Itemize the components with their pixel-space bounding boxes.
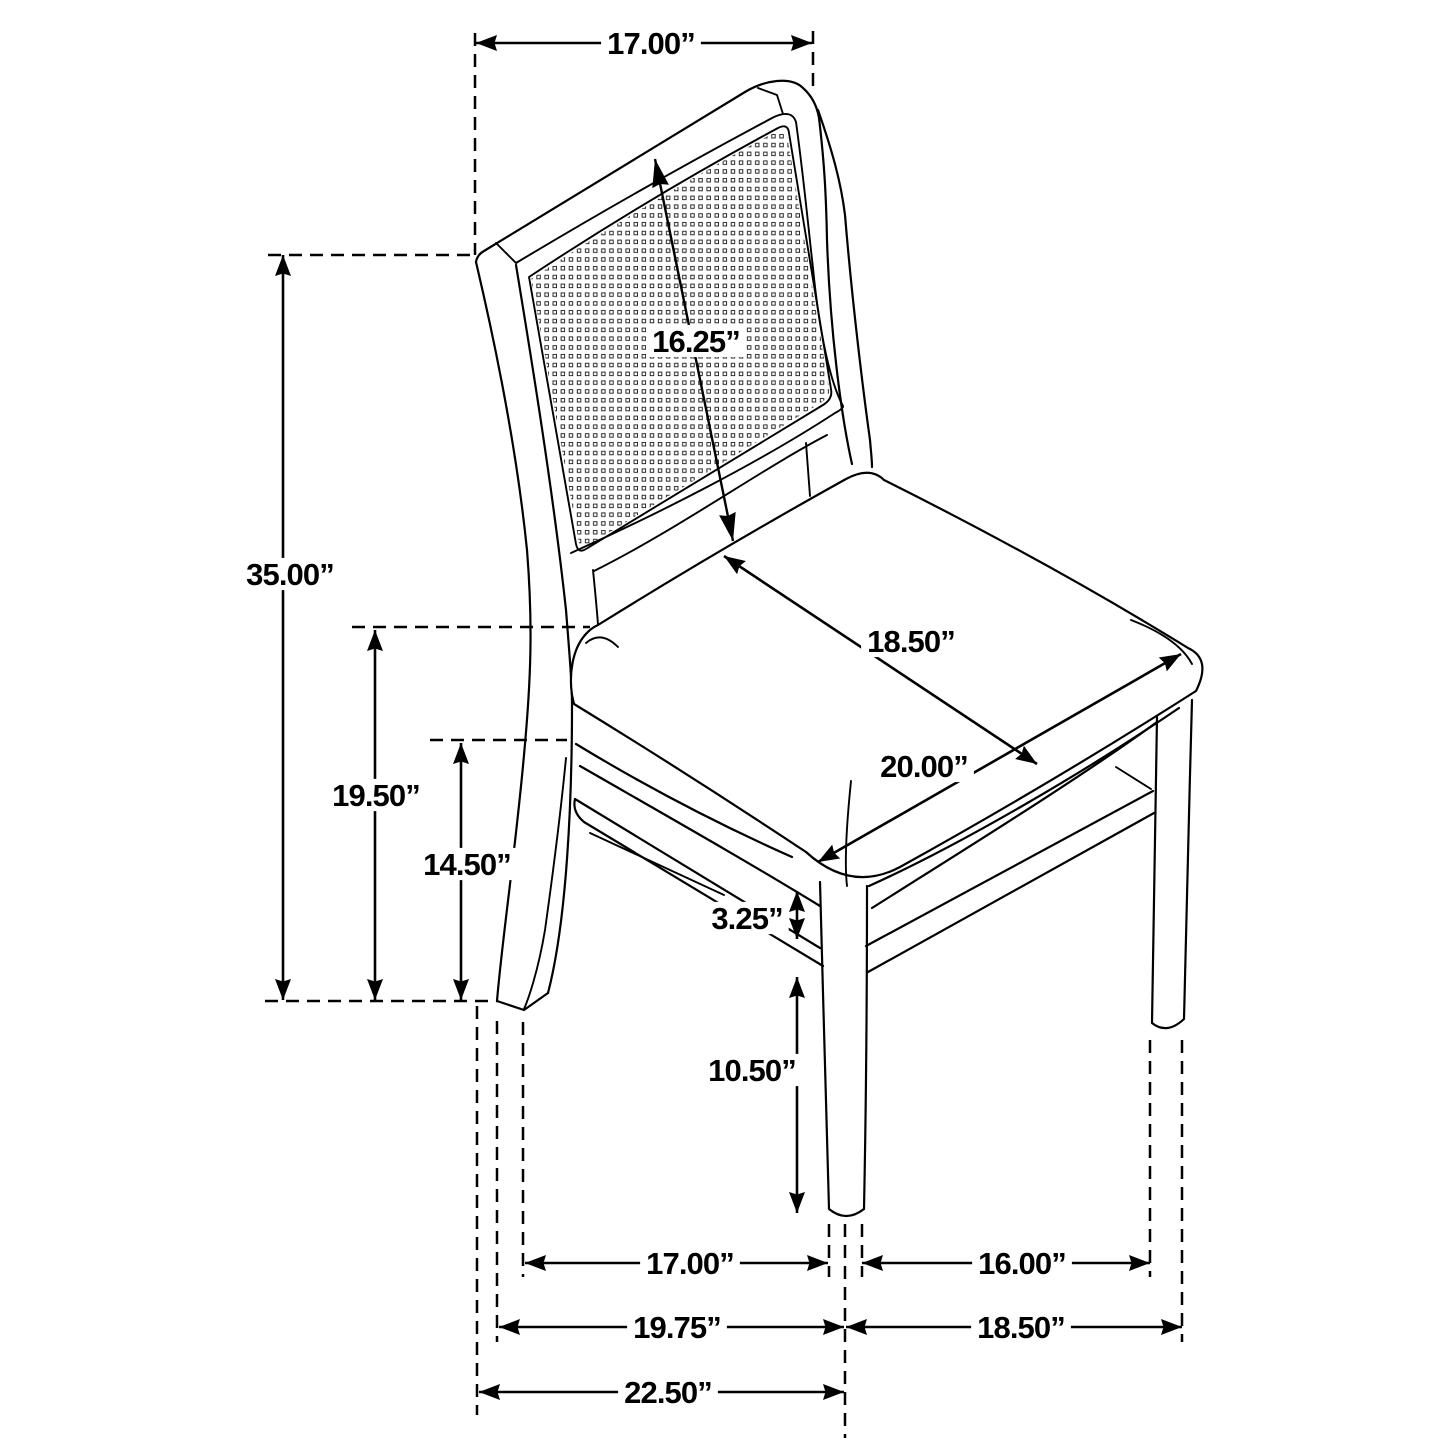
svg-text:18.50”: 18.50”: [867, 624, 955, 659]
svg-text:20.00”: 20.00”: [880, 749, 968, 784]
svg-text:19.50”: 19.50”: [332, 778, 420, 813]
svg-text:16.00”: 16.00”: [978, 1246, 1066, 1281]
svg-text:19.75”: 19.75”: [633, 1310, 721, 1345]
svg-text:10.50”: 10.50”: [708, 1053, 796, 1088]
svg-text:22.50”: 22.50”: [624, 1375, 712, 1410]
svg-text:16.25”: 16.25”: [652, 324, 740, 359]
svg-text:35.00”: 35.00”: [246, 557, 334, 592]
svg-text:18.50”: 18.50”: [977, 1310, 1065, 1345]
svg-text:17.00”: 17.00”: [607, 26, 695, 61]
svg-text:14.50”: 14.50”: [423, 847, 511, 882]
svg-text:3.25”: 3.25”: [711, 901, 782, 936]
svg-text:17.00”: 17.00”: [646, 1246, 734, 1281]
